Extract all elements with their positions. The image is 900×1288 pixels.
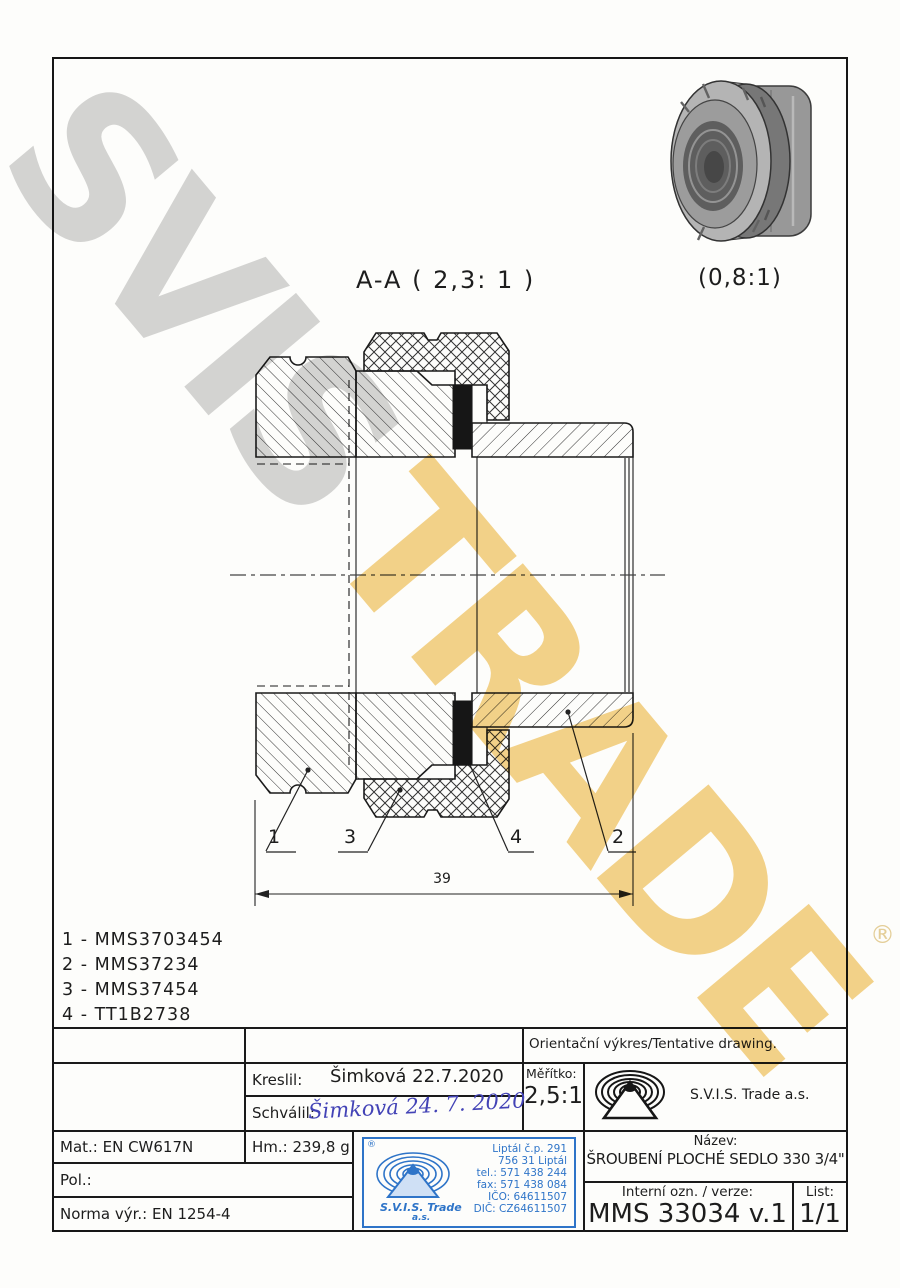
stamp-company-suffix: a.s. <box>412 1213 430 1223</box>
interni-label: Interní ozn. / verze: <box>583 1184 792 1200</box>
norm-field: Norma výr.: EN 1254-4 <box>60 1205 231 1223</box>
stamp-line: DIČ: CZ64611507 <box>474 1203 567 1215</box>
titleblock-line <box>583 1181 848 1183</box>
callout-4: 4 <box>505 826 527 848</box>
titleblock-line <box>522 1027 524 1130</box>
kreslil-label: Kreslil: <box>252 1071 302 1089</box>
kreslil-value: Šimková 22.7.2020 <box>330 1066 504 1087</box>
company-stamp: ® Liptál č.p. 291 756 31 Liptál tel.: 57… <box>362 1137 576 1228</box>
stamp-line: Liptál č.p. 291 <box>492 1143 567 1155</box>
parts-list-item: 4 - TT1B2738 <box>62 1005 191 1025</box>
watermark-registered-icon: ® <box>870 920 895 949</box>
material-field: Mat.: EN CW617N <box>60 1138 193 1156</box>
part-title: ŠROUBENÍ PLOCHÉ SEDLO 330 3/4" <box>583 1150 848 1168</box>
callout-2: 2 <box>607 826 629 848</box>
meritko-label: Měřítko: <box>526 1066 577 1081</box>
titleblock-line <box>52 1162 352 1164</box>
titleblock-line <box>52 1196 352 1198</box>
stamp-line: fax: 571 438 084 <box>477 1179 567 1191</box>
meritko-value: 2,5:1 <box>524 1083 583 1109</box>
stamp-line: tel.: 571 438 244 <box>476 1167 567 1179</box>
callout-1: 1 <box>263 826 285 848</box>
company-name: S.V.I.S. Trade a.s. <box>690 1087 809 1103</box>
parts-list-item: 1 - MMS3703454 <box>62 930 224 950</box>
stamp-line: IČO: 64611507 <box>488 1191 567 1203</box>
titleblock-line <box>352 1130 354 1232</box>
section-view-label: A-A ( 2,3: 1 ) <box>356 266 535 294</box>
titleblock-line <box>244 1027 246 1162</box>
dimension-value: 39 <box>420 871 464 887</box>
stamp-line: 756 31 Liptál <box>498 1155 567 1167</box>
nazev-label: Název: <box>583 1134 848 1149</box>
parts-list-item: 2 - MMS37234 <box>62 955 200 975</box>
callout-3: 3 <box>339 826 361 848</box>
sheet-frame <box>52 57 848 1232</box>
parts-list-item: 3 - MMS37454 <box>62 980 200 1000</box>
titleblock-line <box>52 1062 848 1064</box>
drawing-sheet: SVISTRADE ® A-A ( 2,3: 1 ) (0,8:1) 39 1 … <box>0 0 900 1288</box>
pictorial-scale-label: (0,8:1) <box>698 265 782 291</box>
titleblock-line <box>52 1130 848 1132</box>
stamp-logo-icon <box>372 1149 454 1201</box>
schvalil-label: Schválil: <box>252 1104 315 1122</box>
orientation-note: Orientační výkres/Tentative drawing. <box>529 1036 777 1052</box>
titleblock-line <box>52 1027 848 1029</box>
position-field: Pol.: <box>60 1171 92 1189</box>
list-label: List: <box>792 1184 848 1200</box>
list-value: 1/1 <box>792 1199 848 1229</box>
weight-field: Hm.: 239,8 g <box>252 1138 350 1156</box>
interni-value: MMS 33034 v.1 <box>583 1199 792 1229</box>
